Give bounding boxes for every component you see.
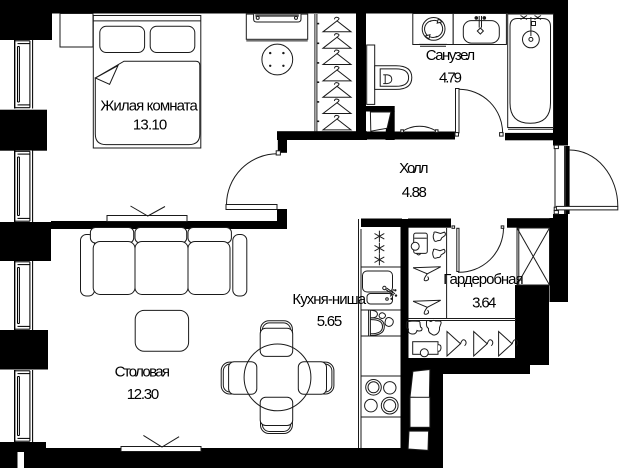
svg-text:Столовая: Столовая [115,364,170,381]
svg-text:13.10: 13.10 [133,117,167,134]
svg-text:4.79: 4.79 [439,70,462,87]
svg-text:Жилая комната: Жилая комната [100,98,198,115]
svg-text:Холл: Холл [399,160,428,177]
svg-text:Санузел: Санузел [426,47,476,64]
svg-text:5.65: 5.65 [317,313,343,330]
svg-text:3.64: 3.64 [472,294,496,311]
svg-text:12.30: 12.30 [127,386,160,403]
svg-text:Кухня-ниша: Кухня-ниша [292,291,366,308]
svg-text:Гардеробная: Гардеробная [443,271,523,288]
svg-text:4.88: 4.88 [402,184,427,201]
